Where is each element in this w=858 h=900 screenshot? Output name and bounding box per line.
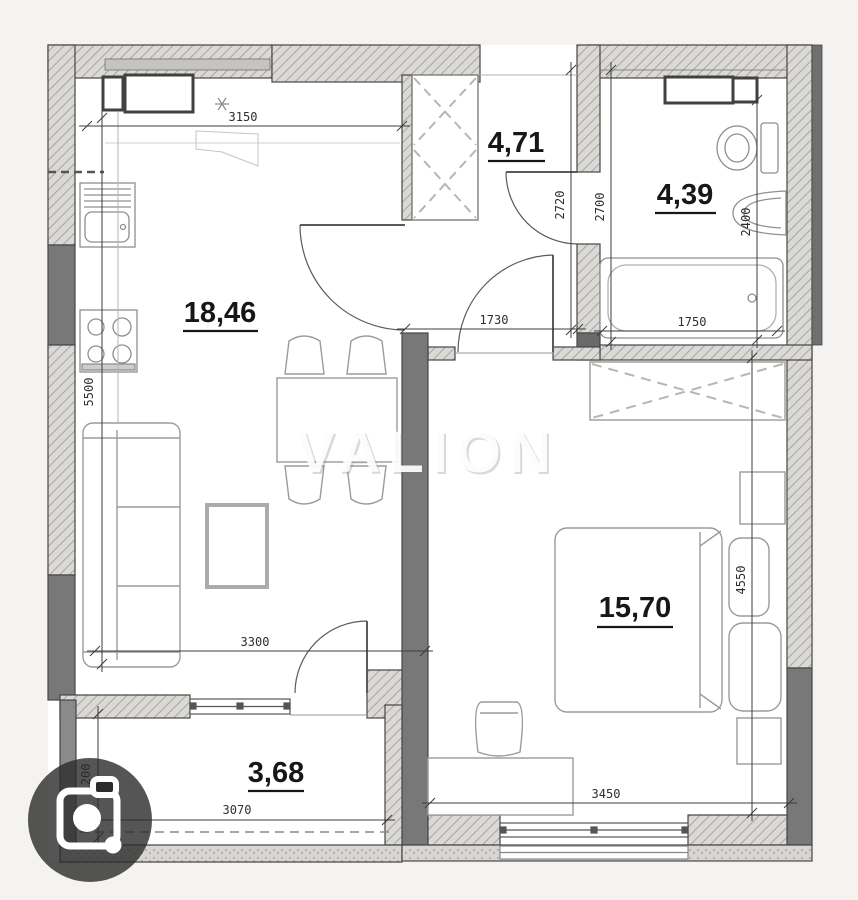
dining-chair xyxy=(347,336,386,374)
dim-label: 2700 xyxy=(593,193,607,222)
bedside-unit xyxy=(729,623,781,711)
wardrobe xyxy=(590,362,785,420)
dim-label: 5500 xyxy=(82,378,96,407)
nightstand xyxy=(740,472,785,524)
hallway-area-label: 4,71 xyxy=(488,127,544,159)
kitchen-sink xyxy=(80,183,135,247)
dim-label: 2720 xyxy=(553,191,567,220)
dining-chair xyxy=(285,336,324,374)
dim-label: 3070 xyxy=(223,803,252,817)
washing-machine xyxy=(665,77,757,103)
desk-chair xyxy=(476,702,523,756)
living-area-label: 18,46 xyxy=(184,297,257,329)
sofa xyxy=(83,423,180,667)
dim-label: 3150 xyxy=(229,110,258,124)
desk xyxy=(428,758,573,815)
watermark-text: VALION xyxy=(296,420,559,485)
hall-closet xyxy=(412,75,478,220)
dim-label: 1730 xyxy=(480,313,509,327)
dim-label: 2400 xyxy=(739,208,753,237)
camera-icon xyxy=(28,758,152,882)
dim-label: 3300 xyxy=(241,635,270,649)
coffee-table xyxy=(207,505,267,587)
living-window xyxy=(190,699,290,714)
toilet xyxy=(717,123,778,173)
nightstand xyxy=(737,718,781,764)
dim-label: 4550 xyxy=(734,566,748,595)
floor-plan-image: 3150 5500 3300 1730 2720 xyxy=(0,0,858,900)
dim-label: 3450 xyxy=(592,787,621,801)
balcony-area-label: 3,68 xyxy=(248,757,304,789)
fridge xyxy=(103,75,193,112)
bathroom-area-label: 4,39 xyxy=(657,179,713,211)
bedroom-area-label: 15,70 xyxy=(599,592,672,624)
stove xyxy=(80,310,137,372)
dim-label: 1750 xyxy=(678,315,707,329)
floor-plan-svg: 3150 5500 3300 1730 2720 xyxy=(0,0,858,900)
watermark: VALION VALION xyxy=(296,420,561,487)
